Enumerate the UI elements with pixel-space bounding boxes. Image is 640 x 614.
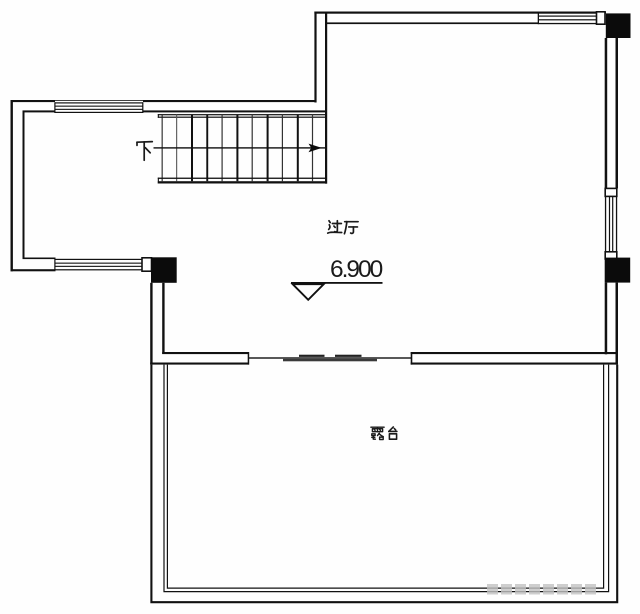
svg-text:6.900: 6.900	[330, 256, 383, 283]
